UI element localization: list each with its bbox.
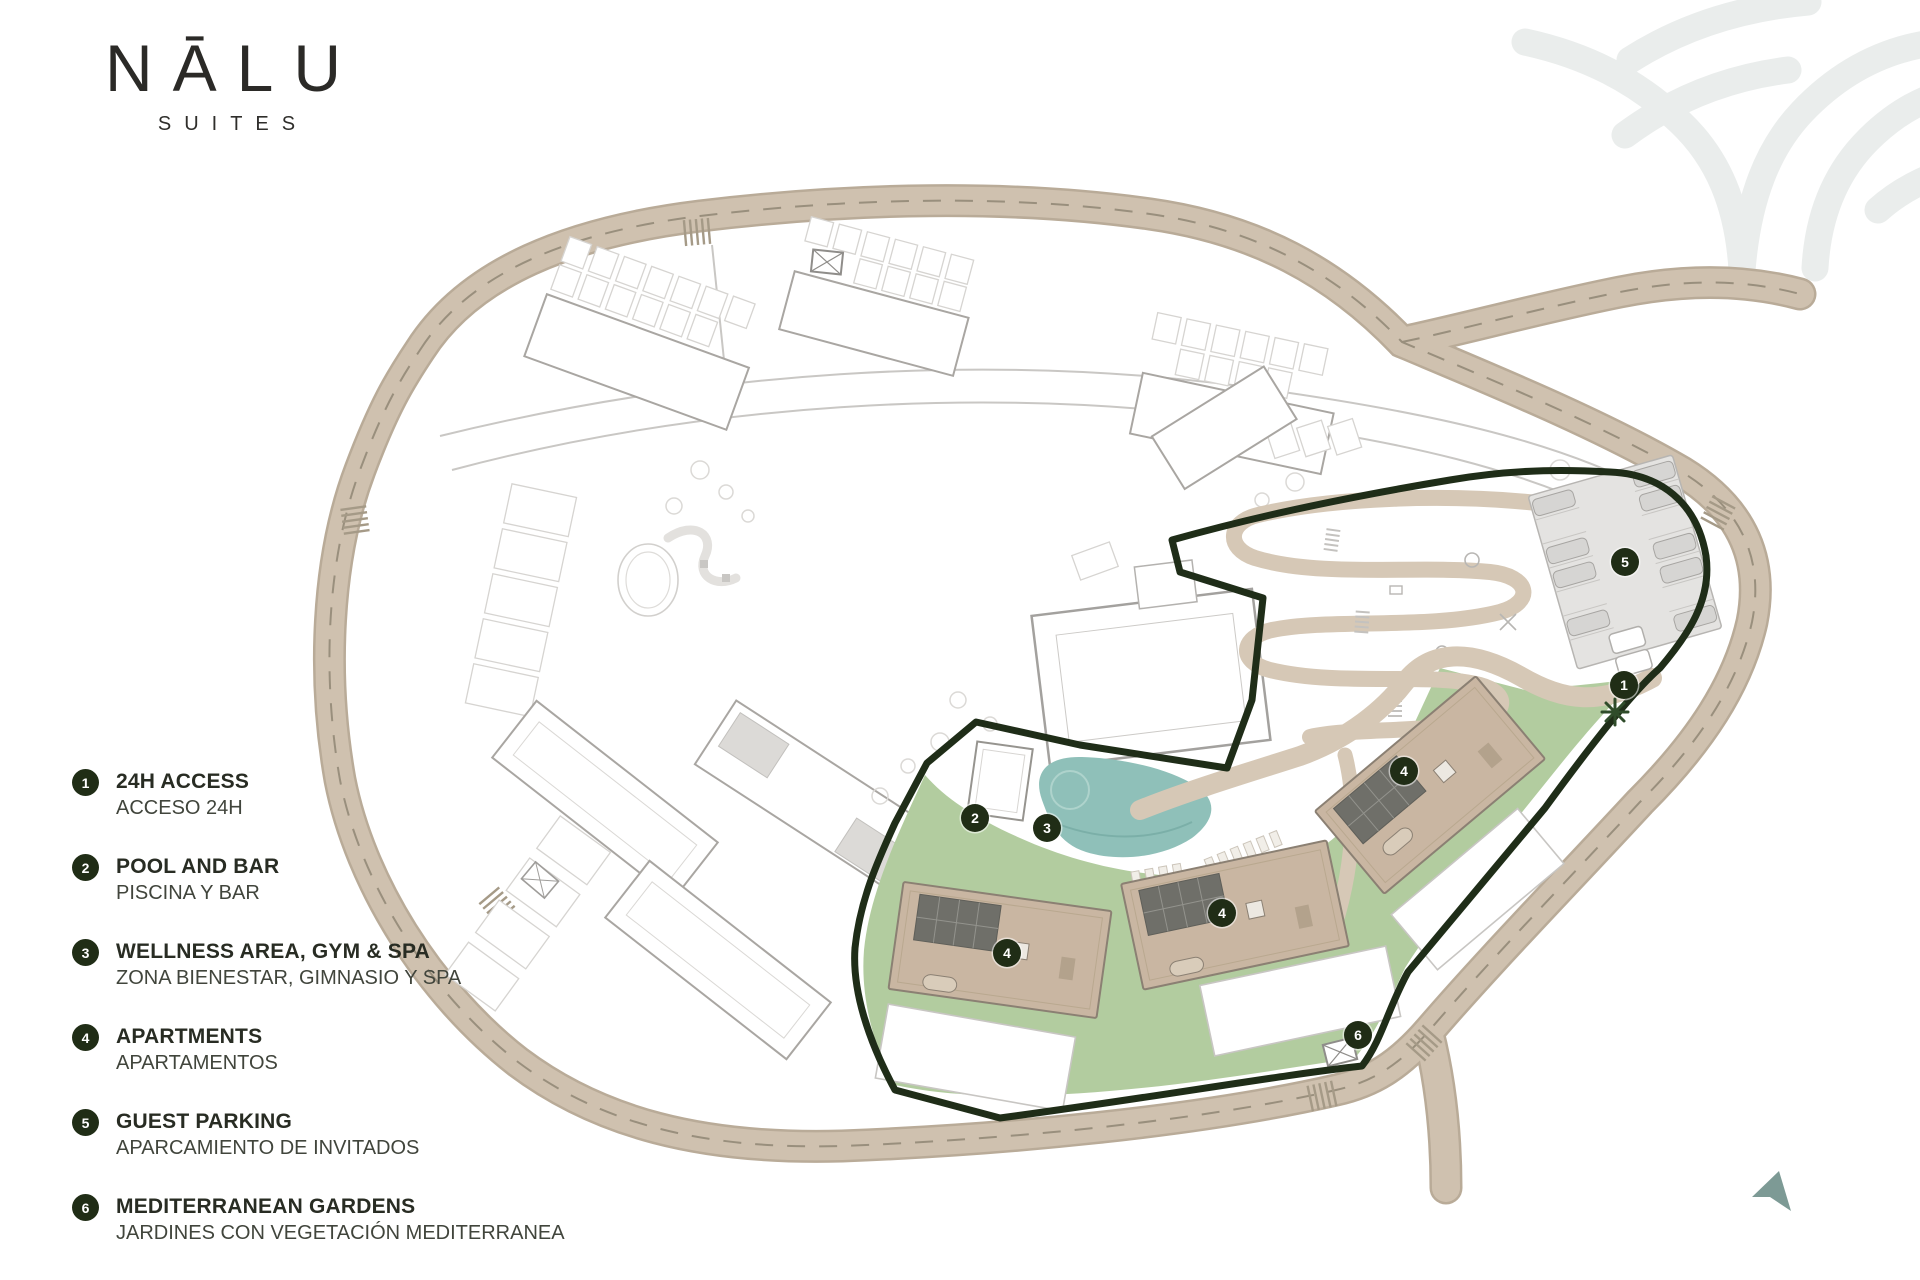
brand-tagline: SUITES <box>78 113 388 136</box>
legend-subtitle: JARDINES CON VEGETACIÓN MEDITERRANEA <box>116 1222 565 1244</box>
map-marker-apartments-west: 4 <box>993 939 1021 967</box>
legend-item-apartments: 4 APARTMENTS APARTAMENTOS <box>72 1024 565 1076</box>
legend-number-icon: 2 <box>72 854 99 881</box>
map-marker-apartments-central: 4 <box>1208 899 1236 927</box>
legend-item-pool-and-bar: 2 POOL AND BAR PISCINA Y BAR <box>72 854 565 906</box>
legend-number-icon: 4 <box>72 1024 99 1051</box>
legend-number-icon: 5 <box>72 1109 99 1136</box>
legend-item-guest-parking: 5 GUEST PARKING APARCAMIENTO DE INVITADO… <box>72 1109 565 1161</box>
legend-title: MEDITERRANEAN GARDENS <box>116 1195 415 1218</box>
legend: 1 24H ACCESS ACCESO 24H 2 POOL AND BAR P… <box>72 769 565 1279</box>
legend-number-icon: 1 <box>72 769 99 796</box>
brand-name: NĀLU <box>78 34 388 103</box>
map-marker-24h-access: 1 <box>1610 671 1638 699</box>
map-marker-guest-parking: 5 <box>1611 548 1639 576</box>
legend-title: 24H ACCESS <box>116 770 249 793</box>
legend-subtitle: PISCINA Y BAR <box>116 882 260 904</box>
map-marker-pool-and-bar: 2 <box>961 804 989 832</box>
legend-item-wellness: 3 WELLNESS AREA, GYM & SPA ZONA BIENESTA… <box>72 939 565 991</box>
legend-item-24h-access: 1 24H ACCESS ACCESO 24H <box>72 769 565 821</box>
legend-subtitle: APARTAMENTOS <box>116 1052 278 1074</box>
palm-tree-icon <box>1602 699 1628 725</box>
brand-logo: NĀLU SUITES <box>78 34 388 136</box>
north-arrow-icon <box>1752 1171 1791 1211</box>
map-marker-wellness-gym-spa: 3 <box>1033 814 1061 842</box>
gate-icon <box>811 249 843 274</box>
legend-number-icon: 3 <box>72 939 99 966</box>
legend-number-icon: 6 <box>72 1194 99 1221</box>
legend-title: POOL AND BAR <box>116 855 279 878</box>
legend-subtitle: APARCAMIENTO DE INVITADOS <box>116 1137 419 1159</box>
map-marker-apartments-east: 4 <box>1390 757 1418 785</box>
legend-title: APARTMENTS <box>116 1025 262 1048</box>
pool-area <box>1039 757 1211 857</box>
map-marker-mediterranean-gardens: 6 <box>1344 1021 1372 1049</box>
legend-subtitle: ZONA BIENESTAR, GIMNASIO Y SPA <box>116 967 461 989</box>
legend-subtitle: ACCESO 24H <box>116 797 243 819</box>
legend-title: WELLNESS AREA, GYM & SPA <box>116 940 430 963</box>
brand-tree-watermark-icon <box>1525 2 1920 270</box>
legend-title: GUEST PARKING <box>116 1110 292 1133</box>
legend-item-gardens: 6 MEDITERRANEAN GARDENS JARDINES CON VEG… <box>72 1194 565 1246</box>
